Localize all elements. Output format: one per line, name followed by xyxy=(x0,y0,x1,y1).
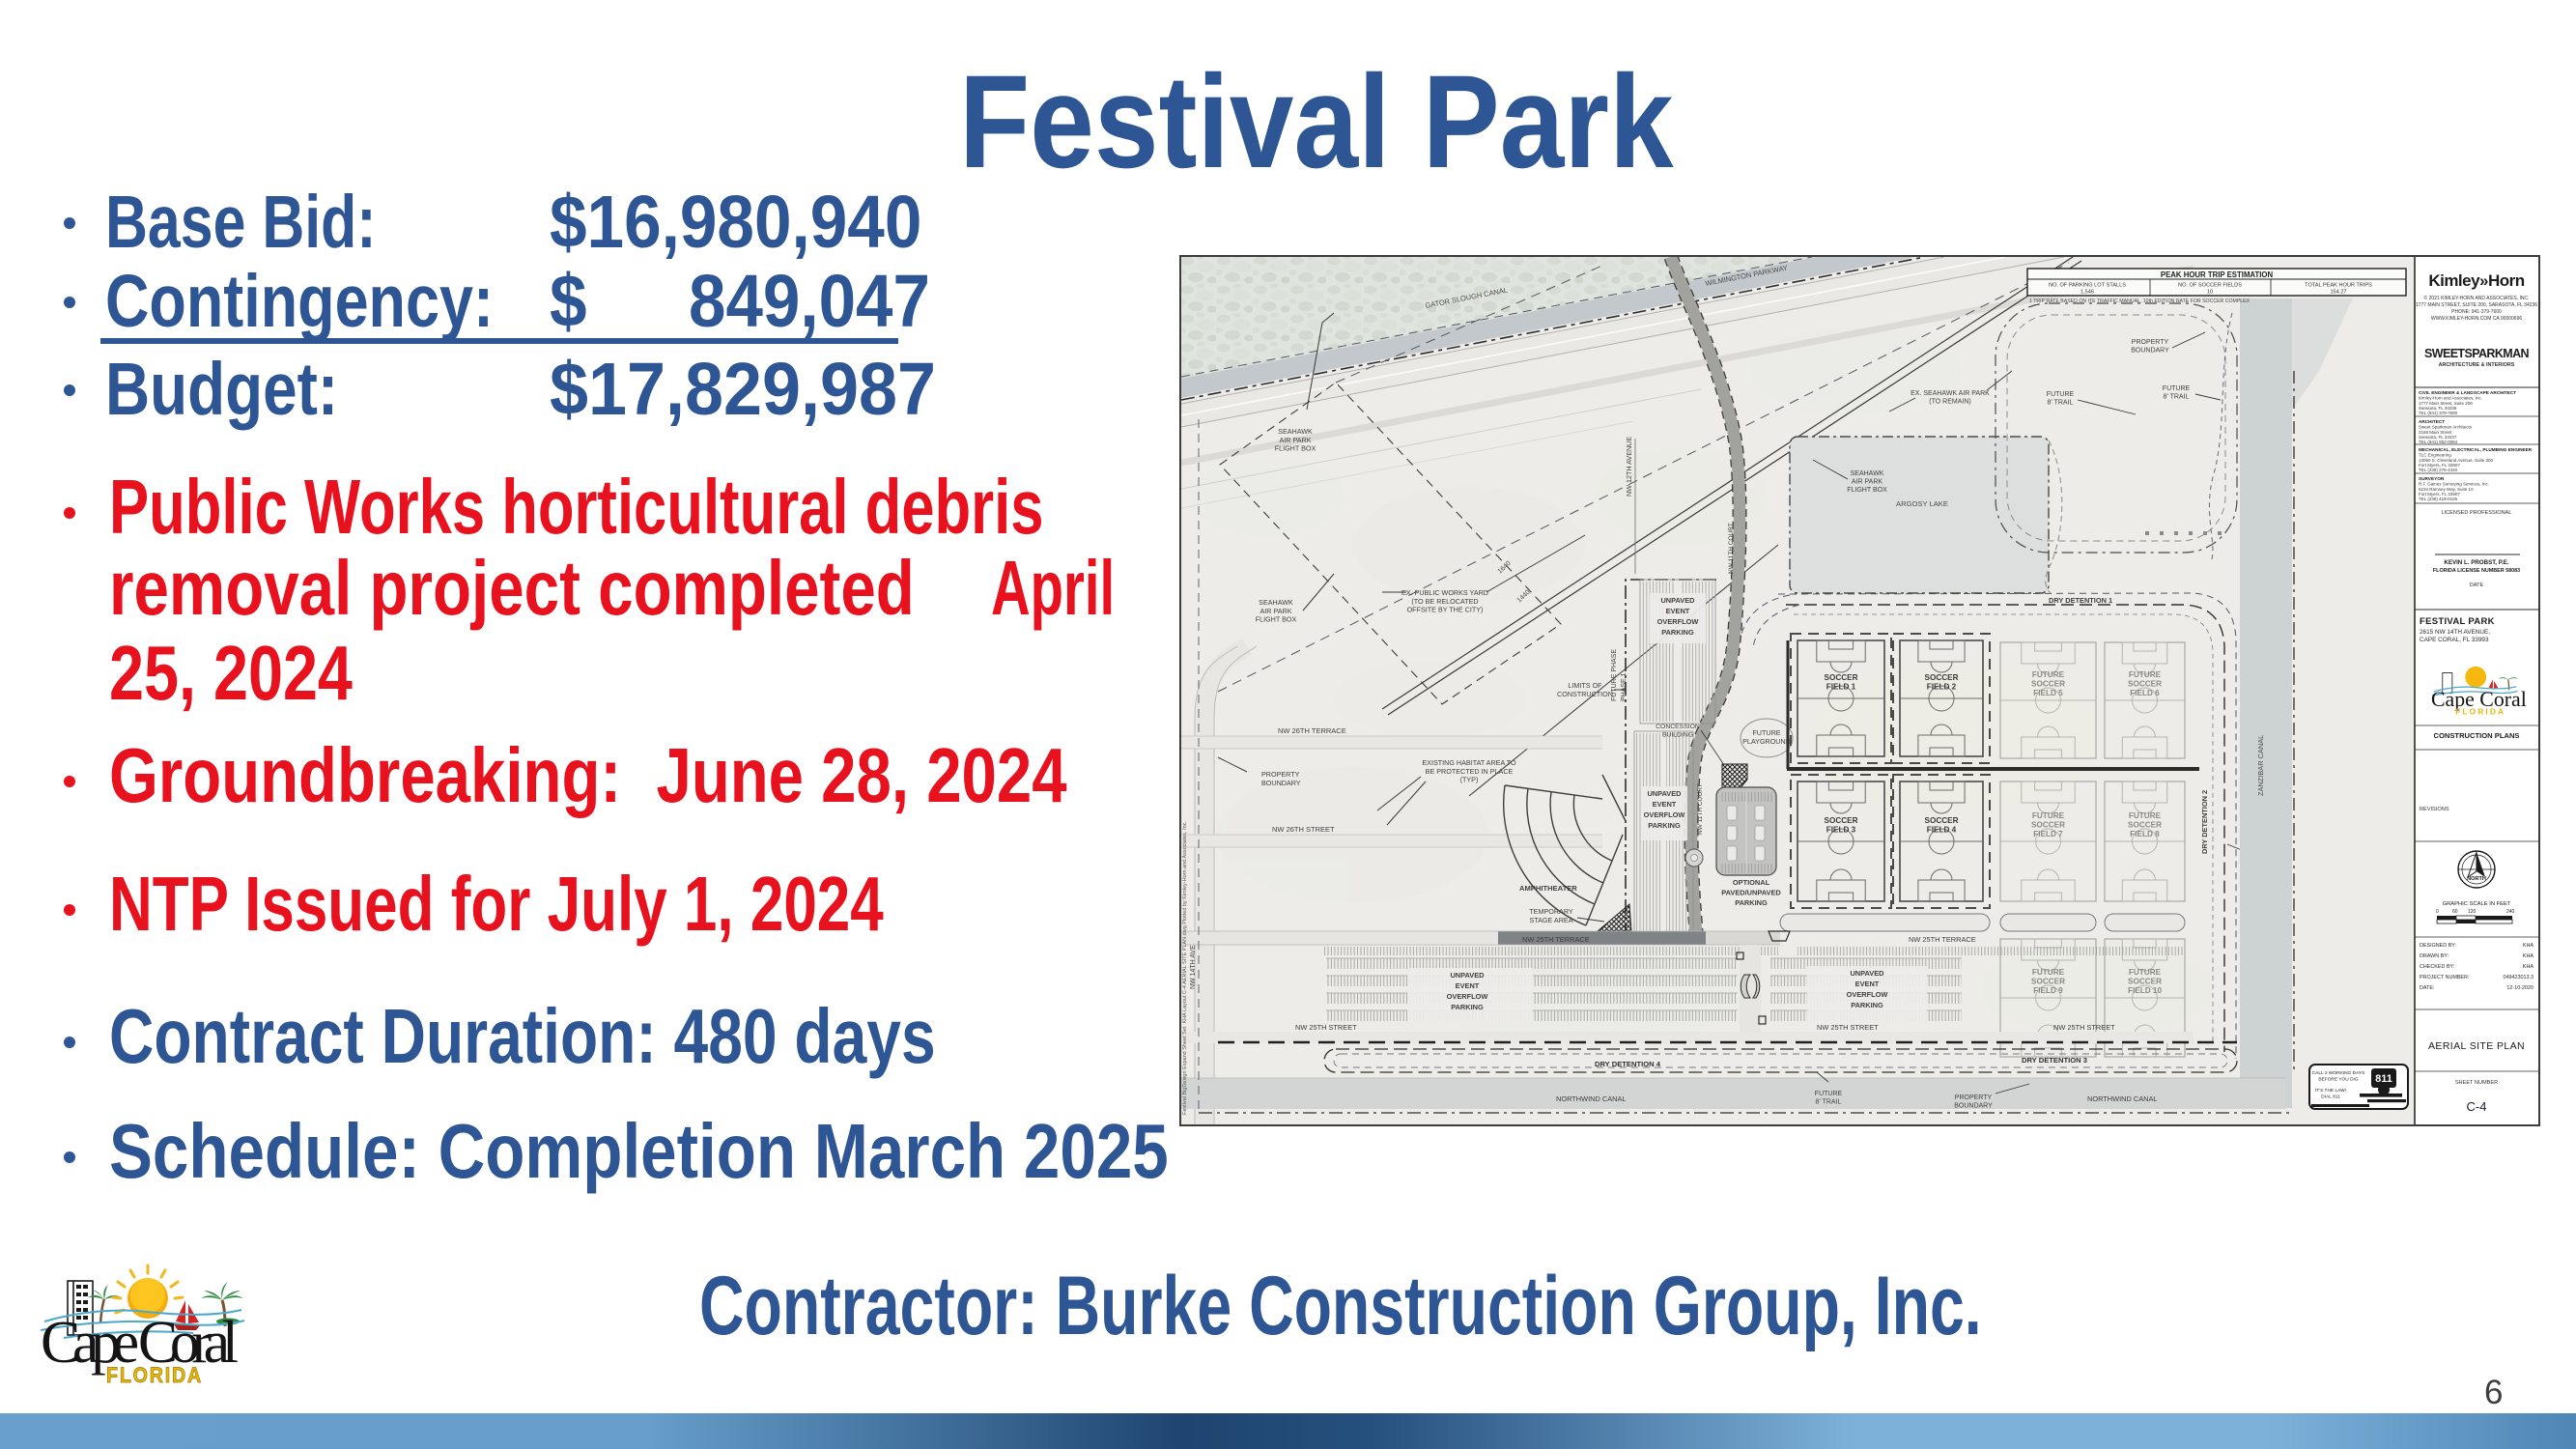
svg-text:IT'S THE LAW!: IT'S THE LAW! xyxy=(2315,1088,2346,1094)
svg-text:2615 NW 14TH AVENUE,: 2615 NW 14TH AVENUE, xyxy=(2420,629,2490,636)
svg-text:KHA: KHA xyxy=(2523,953,2534,959)
svg-text:10: 10 xyxy=(2207,290,2213,296)
svg-text:MECHANICAL, ELECTRICAL, PLUMBI: MECHANICAL, ELECTRICAL, PLUMBING ENGINEE… xyxy=(2419,447,2533,452)
svg-text:FLORIDA: FLORIDA xyxy=(2455,706,2505,716)
svg-text:SEAHAWK: SEAHAWK xyxy=(1851,470,1884,477)
svg-text:CHECKED BY:: CHECKED BY: xyxy=(2420,964,2454,970)
svg-text:WWW.KIMLEY-HORN.COM CA 00000: WWW.KIMLEY-HORN.COM CA 00000696 xyxy=(2431,316,2523,322)
svg-text:FUTURESOCCERFIELD 7: FUTURESOCCERFIELD 7 xyxy=(2031,811,2065,838)
svg-text:NORTHWIND CANAL: NORTHWIND CANAL xyxy=(2087,1094,2158,1103)
svg-text:DIAL 811: DIAL 811 xyxy=(2321,1094,2340,1099)
svg-text:DATE: DATE xyxy=(2470,582,2484,588)
svg-text:OVERFLOW: OVERFLOW xyxy=(1447,992,1488,1001)
svg-text:PROPERTY: PROPERTY xyxy=(1261,770,1300,779)
svg-text:BOUNDARY: BOUNDARY xyxy=(1954,1103,1993,1110)
svg-text:NORTH: NORTH xyxy=(2467,876,2486,882)
svg-text:TEL (941) 379-7600: TEL (941) 379-7600 xyxy=(2419,411,2458,415)
svg-text:REVISIONS: REVISIONS xyxy=(2420,807,2449,812)
svg-text:EVENT: EVENT xyxy=(1855,980,1880,988)
svg-text:SOCCERFIELD 3: SOCCERFIELD 3 xyxy=(1824,816,1857,835)
svg-text:NW 25TH STREET: NW 25TH STREET xyxy=(2053,1023,2115,1032)
svg-text:NW 25TH TERRACE: NW 25TH TERRACE xyxy=(1909,935,1976,944)
svg-text:NW 12TH AVENUE: NW 12TH AVENUE xyxy=(1625,437,1633,497)
svg-text:AMPHITHEATER: AMPHITHEATER xyxy=(1519,884,1577,893)
svg-text:UNPAVED: UNPAVED xyxy=(1850,969,1884,978)
svg-text:FUTURESOCCERFIELD 8: FUTURESOCCERFIELD 8 xyxy=(2128,811,2162,838)
svg-text:ARCHITECT: ARCHITECT xyxy=(2419,419,2445,424)
svg-text:NO. OF SOCCER FIELDS: NO. OF SOCCER FIELDS xyxy=(2178,283,2242,289)
svg-text:NW 11TH COURT: NW 11TH COURT xyxy=(1728,523,1735,574)
svg-text:TEMPORARY: TEMPORARY xyxy=(1529,907,1573,916)
svg-text:NW 26TH STREET: NW 26TH STREET xyxy=(1272,825,1335,834)
svg-text:PARKING: PARKING xyxy=(1661,628,1694,637)
svg-text:KEVIN L. PROBST, P.E.: KEVIN L. PROBST, P.E. xyxy=(2444,559,2509,566)
svg-text:PAVED/UNPAVED: PAVED/UNPAVED xyxy=(1721,889,1781,897)
svg-text:FUTURE: FUTURE xyxy=(2163,385,2191,392)
svg-text:Festival BigDesign Expand Sh: Festival BigDesign Expand Sheet Set KHA … xyxy=(1182,821,1188,1115)
svg-text:FUTURE: FUTURE xyxy=(1752,728,1780,737)
svg-text:PLAYGROUND: PLAYGROUND xyxy=(1742,737,1791,746)
svg-text:STAGE AREA: STAGE AREA xyxy=(1529,916,1572,924)
svg-text:PARKING: PARKING xyxy=(1735,898,1768,907)
svg-text:DRY DETENTION 3: DRY DETENTION 3 xyxy=(2022,1056,2087,1065)
svg-text:BEFORE YOU DIG: BEFORE YOU DIG xyxy=(2318,1076,2358,1082)
svg-text:(TO BE RELOCATED: (TO BE RELOCATED xyxy=(1411,597,1478,606)
svg-text:SOCCERFIELD 2: SOCCERFIELD 2 xyxy=(1924,673,1958,692)
svg-text:DRY DETENTION 2: DRY DETENTION 2 xyxy=(2200,790,2209,854)
svg-text:BOUNDARY: BOUNDARY xyxy=(1261,779,1301,787)
svg-text:FUTURESOCCERFIELD 10: FUTURESOCCERFIELD 10 xyxy=(2128,968,2162,995)
svg-text:DRY DETENTION 1: DRY DETENTION 1 xyxy=(2049,596,2112,605)
svg-text:FLIGHT BOX: FLIGHT BOX xyxy=(1275,444,1316,453)
svg-text:SEAHAWK: SEAHAWK xyxy=(1278,427,1313,436)
svg-text:CALL 2 WORKING DAYS: CALL 2 WORKING DAYS xyxy=(2312,1070,2365,1076)
svg-text:ARCHITECTURE & INTERIORS: ARCHITECTURE & INTERIORS xyxy=(2439,362,2515,368)
svg-text:FLIGHT BOX: FLIGHT BOX xyxy=(1847,487,1887,494)
svg-text:60: 60 xyxy=(2452,909,2458,915)
svg-text:FUTURE: FUTURE xyxy=(1815,1091,1843,1097)
svg-text:LIMITS OF: LIMITS OF xyxy=(1568,681,1602,690)
svg-text:(TO REMAIN): (TO REMAIN) xyxy=(1929,399,1970,406)
svg-text:LICENSED PROFESSIONAL: LICENSED PROFESSIONAL xyxy=(2441,510,2511,516)
svg-text:ZANZIBAR CANAL: ZANZIBAR CANAL xyxy=(2256,735,2265,796)
svg-text:PROJECT NUMBER:: PROJECT NUMBER: xyxy=(2420,975,2469,980)
svg-text:AIR PARK: AIR PARK xyxy=(1260,607,1291,615)
svg-text:BUILDING: BUILDING xyxy=(1662,731,1693,738)
svg-text:NW 25TH STREET: NW 25TH STREET xyxy=(1817,1023,1879,1032)
svg-text:1777 MAIN STREET, SUITE 200, S: 1777 MAIN STREET, SUITE 200, SARASOTA, F… xyxy=(2416,302,2537,308)
svg-text:UNPAVED: UNPAVED xyxy=(1660,596,1695,605)
svg-text:PARKING: PARKING xyxy=(1851,1001,1883,1009)
svg-text:FUTURE: FUTURE xyxy=(2047,391,2075,398)
svg-text:EX. SEAHAWK AIR PARK: EX. SEAHAWK AIR PARK xyxy=(1911,390,1990,397)
svg-text:TEL (239) 278-4340: TEL (239) 278-4340 xyxy=(2419,468,2458,472)
svg-text:154.27: 154.27 xyxy=(2330,290,2346,296)
svg-text:Kimley»Horn: Kimley»Horn xyxy=(2428,271,2524,290)
svg-text:8' TRAIL: 8' TRAIL xyxy=(1816,1099,1842,1106)
svg-text:OVERFLOW: OVERFLOW xyxy=(1657,617,1699,626)
svg-text:KHA: KHA xyxy=(2523,964,2534,970)
svg-text:FLIGHT BOX: FLIGHT BOX xyxy=(1256,615,1297,624)
svg-text:AERIAL SITE PLAN: AERIAL SITE PLAN xyxy=(2428,1040,2525,1052)
svg-text:KHA: KHA xyxy=(2523,943,2534,949)
svg-text:DATE:: DATE: xyxy=(2420,985,2434,991)
svg-text:NW 26TH TERRACE: NW 26TH TERRACE xyxy=(1278,726,1346,735)
svg-text:FLORIDA LICENSE NUMBER 58083: FLORIDA LICENSE NUMBER 58083 xyxy=(2433,568,2520,574)
svg-text:FUTURESOCCERFIELD 5: FUTURESOCCERFIELD 5 xyxy=(2031,670,2065,697)
svg-text:1 TRIP RATE BASED ON ITE T: 1 TRIP RATE BASED ON ITE TRAFFIC MANUAL,… xyxy=(2029,298,2250,304)
svg-text:BE PROTECTED IN PLACE: BE PROTECTED IN PLACE xyxy=(1426,767,1514,776)
svg-text:GRAPHIC SCALE IN FEET: GRAPHIC SCALE IN FEET xyxy=(2443,901,2511,907)
svg-text:NW 11TH COURT: NW 11TH COURT xyxy=(1697,783,1704,835)
svg-text:FLORIDA: FLORIDA xyxy=(106,1363,203,1387)
svg-text:(TYP): (TYP) xyxy=(1460,776,1479,784)
svg-text:SURVEYOR: SURVEYOR xyxy=(2419,476,2445,481)
svg-text:EVENT: EVENT xyxy=(1653,800,1677,809)
svg-text:CAPE CORAL, FL 33993: CAPE CORAL, FL 33993 xyxy=(2420,637,2489,643)
svg-text:UNPAVED: UNPAVED xyxy=(1647,789,1682,798)
svg-text:8' TRAIL: 8' TRAIL xyxy=(2048,400,2074,407)
svg-text:SOCCERFIELD 1: SOCCERFIELD 1 xyxy=(1824,673,1857,692)
svg-text:EXISTING HABITAT AREA TO: EXISTING HABITAT AREA TO xyxy=(1422,758,1516,767)
svg-text:SWEETSPARKMAN: SWEETSPARKMAN xyxy=(2424,347,2530,360)
svg-text:DRAWN BY:: DRAWN BY: xyxy=(2420,953,2449,959)
svg-text:NO. OF PARKING LOT STALLS: NO. OF PARKING LOT STALLS xyxy=(2049,283,2126,289)
svg-text:NORTHWIND CANAL: NORTHWIND CANAL xyxy=(1556,1094,1627,1103)
svg-text:AIR PARK: AIR PARK xyxy=(1279,436,1311,444)
svg-text:OFFSITE BY THE CITY): OFFSITE BY THE CITY) xyxy=(1407,606,1484,614)
svg-text:240: 240 xyxy=(2506,909,2515,915)
svg-text:8' TRAIL: 8' TRAIL xyxy=(2164,394,2190,401)
svg-text:EVENT: EVENT xyxy=(1666,607,1690,615)
svg-text:OPTIONAL: OPTIONAL xyxy=(1733,878,1770,887)
svg-text:© 2021 KIMLEY-HORN AND ASSOCIA: © 2021 KIMLEY-HORN AND ASSOCIATES, INC. xyxy=(2424,295,2530,301)
svg-text:0: 0 xyxy=(2436,909,2439,915)
svg-text:FUTURESOCCERFIELD 6: FUTURESOCCERFIELD 6 xyxy=(2128,670,2162,697)
svg-text:PEAK HOUR TRIP ESTIMATION: PEAK HOUR TRIP ESTIMATION xyxy=(2161,270,2274,279)
svg-text:DRY DETENTION 4: DRY DETENTION 4 xyxy=(1595,1060,1661,1068)
svg-text:PARKING: PARKING xyxy=(1648,821,1681,830)
svg-text:ARGOSY LAKE: ARGOSY LAKE xyxy=(1896,499,1948,508)
svg-text:EX. PUBLIC WORKS YARD: EX. PUBLIC WORKS YARD xyxy=(1401,588,1488,597)
svg-text:C-4: C-4 xyxy=(2467,1099,2487,1114)
svg-text:DESIGNED BY:: DESIGNED BY: xyxy=(2420,943,2456,949)
svg-text:TEL (941) 952-0084: TEL (941) 952-0084 xyxy=(2419,440,2458,444)
svg-text:PHONE: 941-379-7600: PHONE: 941-379-7600 xyxy=(2451,309,2502,315)
svg-text:NW 25TH STREET: NW 25TH STREET xyxy=(1295,1023,1357,1032)
svg-text:SOCCERFIELD 4: SOCCERFIELD 4 xyxy=(1924,816,1958,835)
svg-text:AIR PARK: AIR PARK xyxy=(1852,479,1882,486)
svg-text:PROPERTY: PROPERTY xyxy=(2132,339,2169,346)
svg-text:NW 25TH TERRACE: NW 25TH TERRACE xyxy=(1522,935,1590,944)
svg-text:FUTURESOCCERFIELD 9: FUTURESOCCERFIELD 9 xyxy=(2031,968,2065,995)
svg-text:UNPAVED: UNPAVED xyxy=(1450,971,1485,980)
svg-text:OVERFLOW: OVERFLOW xyxy=(1847,990,1888,999)
svg-text:CONCESSION: CONCESSION xyxy=(1656,724,1700,730)
svg-text:PHASE 1: PHASE 1 xyxy=(1621,672,1628,701)
svg-text:CONSTRUCTION: CONSTRUCTION xyxy=(1557,690,1613,698)
svg-text:SHEET NUMBER: SHEET NUMBER xyxy=(2455,1080,2498,1086)
svg-text:OVERFLOW: OVERFLOW xyxy=(1644,810,1685,819)
svg-text:1,546: 1,546 xyxy=(2081,290,2094,296)
svg-text:FESTIVAL PARK: FESTIVAL PARK xyxy=(2420,616,2495,627)
svg-text:CONSTRUCTION PLANS: CONSTRUCTION PLANS xyxy=(2433,731,2519,740)
svg-text:BOUNDARY: BOUNDARY xyxy=(2131,348,2169,355)
svg-text:PROPERTY: PROPERTY xyxy=(1955,1094,1993,1101)
svg-text:120: 120 xyxy=(2468,909,2477,915)
svg-text:EVENT: EVENT xyxy=(1456,981,1480,990)
svg-text:PARKING: PARKING xyxy=(1451,1003,1484,1011)
svg-text:TOTAL PEAK HOUR TRIPS: TOTAL PEAK HOUR TRIPS xyxy=(2305,283,2372,289)
svg-text:CIVIL ENGINEER & LANDSCAPE ARC: CIVIL ENGINEER & LANDSCAPE ARCHITECT xyxy=(2419,390,2516,395)
svg-text:TEL (239) 418-0126: TEL (239) 418-0126 xyxy=(2419,497,2458,501)
svg-text:811: 811 xyxy=(2375,1073,2392,1085)
svg-text:049423013.3: 049423013.3 xyxy=(2504,975,2534,980)
svg-text:SEAHAWK: SEAHAWK xyxy=(1259,598,1293,607)
svg-text:12-10-2020: 12-10-2020 xyxy=(2506,985,2534,991)
